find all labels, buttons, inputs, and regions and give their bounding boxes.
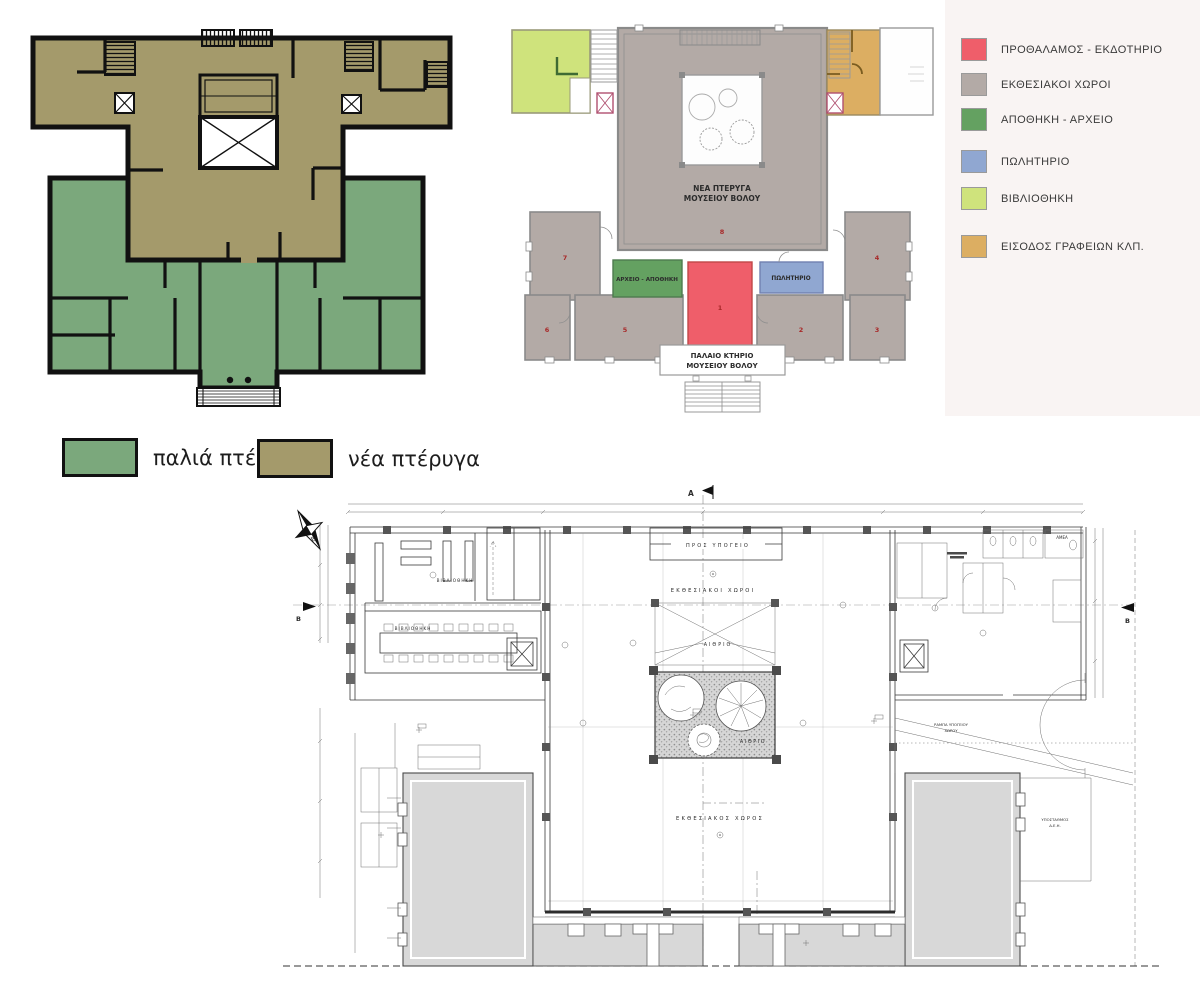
- svg-text:B: B: [296, 615, 301, 623]
- left-wall: [346, 527, 545, 700]
- library-room: ΒΙΒΛΙΟΘΗΚΗ ΒΙΒΛΙΟΘΗΚΗ: [365, 533, 541, 673]
- stair-right-2: [1053, 580, 1081, 622]
- toilets: [983, 530, 1043, 558]
- small-room: [963, 563, 1003, 613]
- tiny-room-label: [950, 556, 964, 559]
- ramp-label-line1: ΡΑΜΠΑ ΥΠΟΓΕΙΟΥ: [934, 722, 969, 727]
- stair-top-right: [345, 42, 373, 71]
- atrium-court: [679, 72, 765, 168]
- elevator-left: [597, 93, 613, 113]
- stair-upper-left: [487, 528, 540, 600]
- scanned-museum-plans-page: ΝΕΑ ΠΤΕΡΥΓΑ ΜΟΥΣΕΙΟΥ ΒΟΛΟΥ ΑΡΧΕΙΟ - ΑΠΟΘ…: [0, 0, 1200, 1000]
- roof-vent-right: [240, 30, 272, 46]
- door-gap: [241, 256, 257, 263]
- substation-room: ΥΠΟΣΤΑΘΜΟΣ Δ.Ε.Η.: [1020, 778, 1091, 881]
- top-wall: [350, 526, 1083, 534]
- svg-text:ΠΑΛΑΙΟ ΚΤΗΡΙΟ: ΠΑΛΑΙΟ ΚΤΗΡΙΟ: [691, 352, 754, 360]
- atrium-shaft: [200, 117, 277, 168]
- legend-swatch-storage: [961, 108, 987, 131]
- atrium-pergola: [651, 599, 779, 665]
- exhibition-space-label: ΕΚΘΕΣΙΑΚΟΣ ΧΩΡΟΣ: [676, 816, 764, 822]
- stair-top-center: [680, 30, 760, 45]
- old-building-label: ΠΑΛΑΙΟ ΚΤΗΡΙΟ ΜΟΥΣΕΙΟΥ ΒΟΛΟΥ: [660, 345, 785, 375]
- stair-far-right: [427, 62, 448, 87]
- elevator-shaft-right: [900, 640, 928, 672]
- legend-label: ΑΠΟΘΗΚΗ - ΑΡΧΕΙΟ: [1001, 114, 1113, 126]
- mini-legend-new: νέα πτέρυγα: [257, 439, 480, 478]
- room-number-7: 7: [563, 254, 568, 262]
- elevator-left: [115, 93, 134, 113]
- new-wing-label: νέα πτέρυγα: [348, 447, 480, 471]
- library-label-lower: ΒΙΒΛΙΟΘΗΚΗ: [395, 626, 432, 631]
- room-number-5: 5: [623, 326, 628, 334]
- stair-top-left: [105, 42, 135, 75]
- room-number-4: 4: [875, 254, 880, 262]
- legend-item: ΕΙΣΟΔΟΣ ΓΡΑΦΕΙΩΝ ΚΛΠ.: [961, 235, 1144, 258]
- legend-item: ΑΠΟΘΗΚΗ - ΑΡΧΕΙΟ: [961, 108, 1113, 131]
- legend-label: ΕΚΘΕΣΙΑΚΟΙ ΧΩΡΟΙ: [1001, 79, 1111, 91]
- tree-starburst: [716, 681, 766, 731]
- legend-swatch-shop: [961, 150, 987, 173]
- front-steps: [685, 376, 760, 412]
- atrium-label-top: ΑΙΘΡΙΟ: [704, 642, 733, 648]
- legend-panel: ΠΡΟΘΑΛΑΜΟΣ - ΕΚΔΟΤΗΡΙΟ ΕΚΘΕΣΙΑΚΟΙ ΧΩΡΟΙ …: [945, 0, 1200, 416]
- library-table: [380, 633, 517, 653]
- exhibition-spaces-label: ΕΚΘΕΣΙΑΚΟΙ ΧΩΡΟΙ: [671, 588, 756, 594]
- entrance-steps: [197, 388, 280, 406]
- basement-ramp: ΡΑΜΠΑ ΥΠΟΓΕΙΟΥ ΧΩΡΟΥ: [895, 700, 1133, 785]
- new-wing-title-line2: ΜΟΥΣΕΙΟΥ ΒΟΛΟΥ: [684, 194, 761, 203]
- legend-swatch-prothalamos: [961, 38, 987, 61]
- room-library: [512, 30, 590, 113]
- legend-swatch-offices: [961, 235, 987, 258]
- tree-crown: [658, 675, 704, 721]
- room-number-8: 8: [720, 228, 725, 236]
- svg-text:ΜΟΥΣΕΙΟΥ ΒΟΛΟΥ: ΜΟΥΣΕΙΟΥ ΒΟΛΟΥ: [686, 362, 758, 370]
- old-building-mass-left: [387, 773, 533, 966]
- stair-left: [591, 30, 617, 82]
- new-wing-swatch: [257, 439, 333, 478]
- old-building-band-right: [739, 917, 905, 966]
- old-building-band-left: [533, 917, 703, 966]
- archive-label: ΑΡΧΕΙΟ - ΑΠΟΘΗΚΗ: [616, 277, 678, 283]
- substation-label-line1: ΥΠΟΣΤΑΘΜΟΣ: [1041, 817, 1069, 822]
- elevator-right: [827, 93, 843, 113]
- section-marker-b-right: B: [1121, 603, 1134, 625]
- library-label-upper: ΒΙΒΛΙΟΘΗΚΗ: [437, 578, 474, 583]
- tiny-room-label: [947, 552, 967, 555]
- legend-item: ΠΩΛΗΤΗΡΙΟ: [961, 150, 1070, 173]
- svg-text:A: A: [688, 489, 694, 498]
- library-shelves: [365, 533, 541, 611]
- function-colour-plan: ΝΕΑ ΠΤΕΡΥΓΑ ΜΟΥΣΕΙΟΥ ΒΟΛΟΥ ΑΡΧΕΙΟ - ΑΠΟΘ…: [495, 12, 945, 417]
- room-number-1: 1: [718, 304, 723, 312]
- old-building-mass-right: [905, 773, 1025, 966]
- entrance-column-dot: [227, 377, 233, 383]
- entrance-column-dot: [245, 377, 251, 383]
- legend-label: ΠΡΟΘΑΛΑΜΟΣ - ΕΚΔΟΤΗΡΙΟ: [1001, 44, 1162, 56]
- atrium-label-inner: ΑΙΘΡΙΟ: [740, 739, 766, 745]
- new-wing-title-line1: ΝΕΑ ΠΤΕΡΥΓΑ: [693, 184, 751, 193]
- old-wing-swatch: [62, 438, 138, 477]
- substation-label-line2: Δ.Ε.Η.: [1049, 823, 1060, 828]
- elevator-shaft-left: [507, 638, 537, 670]
- room-white-right: [880, 28, 933, 115]
- room-number-3: 3: [875, 326, 880, 334]
- legend-label: ΒΙΒΛΙΟΘΗΚΗ: [1001, 193, 1073, 205]
- shop-label: ΠΩΛΗΤΗΡΙΟ: [771, 276, 810, 282]
- section-marker-a: A: [688, 485, 713, 499]
- legend-swatch-exhibition: [961, 73, 987, 96]
- double-door-arcs: [1040, 673, 1085, 778]
- old-new-wing-floor-plan: [25, 20, 455, 408]
- room-number-2: 2: [799, 326, 804, 334]
- legend-item: ΠΡΟΘΑΛΑΜΟΣ - ΕΚΔΟΤΗΡΙΟ: [961, 38, 1162, 61]
- to-basement-label: ΠΡΟΣ ΥΠΟΓΕΙΟ: [686, 543, 750, 549]
- roof-vent-left: [202, 30, 234, 46]
- right-block: ΑΜΕΑ: [895, 527, 1086, 700]
- svg-text:B: B: [1125, 617, 1130, 625]
- amea-wc: ΑΜΕΑ: [1045, 530, 1083, 558]
- tree-flower: [688, 724, 720, 756]
- north-compass-icon: Β: [285, 503, 333, 556]
- technical-ground-plan: Β A B B Γ: [283, 483, 1161, 990]
- legend-swatch-library: [961, 187, 987, 210]
- ramp-label-line2: ΧΩΡΟΥ: [944, 728, 958, 733]
- elevator-right: [342, 95, 361, 113]
- legend-item: ΒΙΒΛΙΟΘΗΚΗ: [961, 187, 1073, 210]
- atrium-court: ΑΙΘΡΙΟ ΑΙΘΡΙΟ: [649, 642, 781, 764]
- legend-label: ΕΙΣΟΔΟΣ ΓΡΑΦΕΙΩΝ ΚΛΠ.: [1001, 241, 1144, 253]
- legend-item: ΕΚΘΕΣΙΑΚΟΙ ΧΩΡΟΙ: [961, 73, 1111, 96]
- amea-label: ΑΜΕΑ: [1056, 535, 1068, 540]
- room-number-6: 6: [545, 326, 550, 334]
- legend-label: ΠΩΛΗΤΗΡΙΟ: [1001, 156, 1070, 168]
